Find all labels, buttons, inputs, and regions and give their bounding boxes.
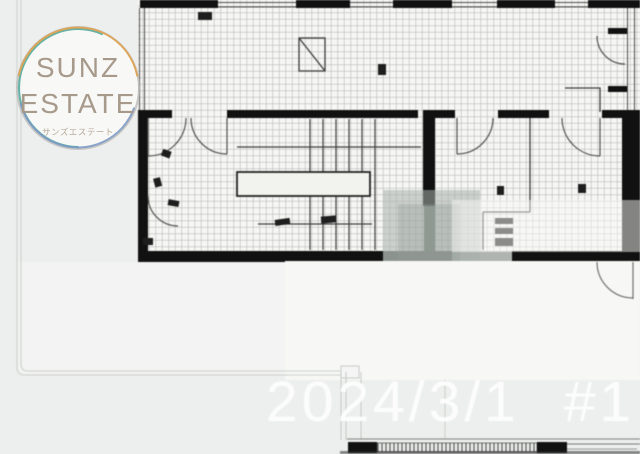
shade-overlays xyxy=(383,190,640,262)
floor-plan-screenshot: SUNZ ESTATE サンズエステート 2024/3/1 #1 xyxy=(0,0,640,454)
white-mask xyxy=(18,261,640,380)
brand-subtitle-jp: サンズエステート xyxy=(42,127,114,137)
brand-name-line1: SUNZ xyxy=(36,52,120,83)
date-watermark: 2024/3/1 #1 xyxy=(266,374,635,431)
brand-logo: SUNZ ESTATE サンズエステート xyxy=(12,21,146,157)
brand-name-line2: ESTATE xyxy=(20,88,137,119)
dining-table xyxy=(237,172,370,196)
